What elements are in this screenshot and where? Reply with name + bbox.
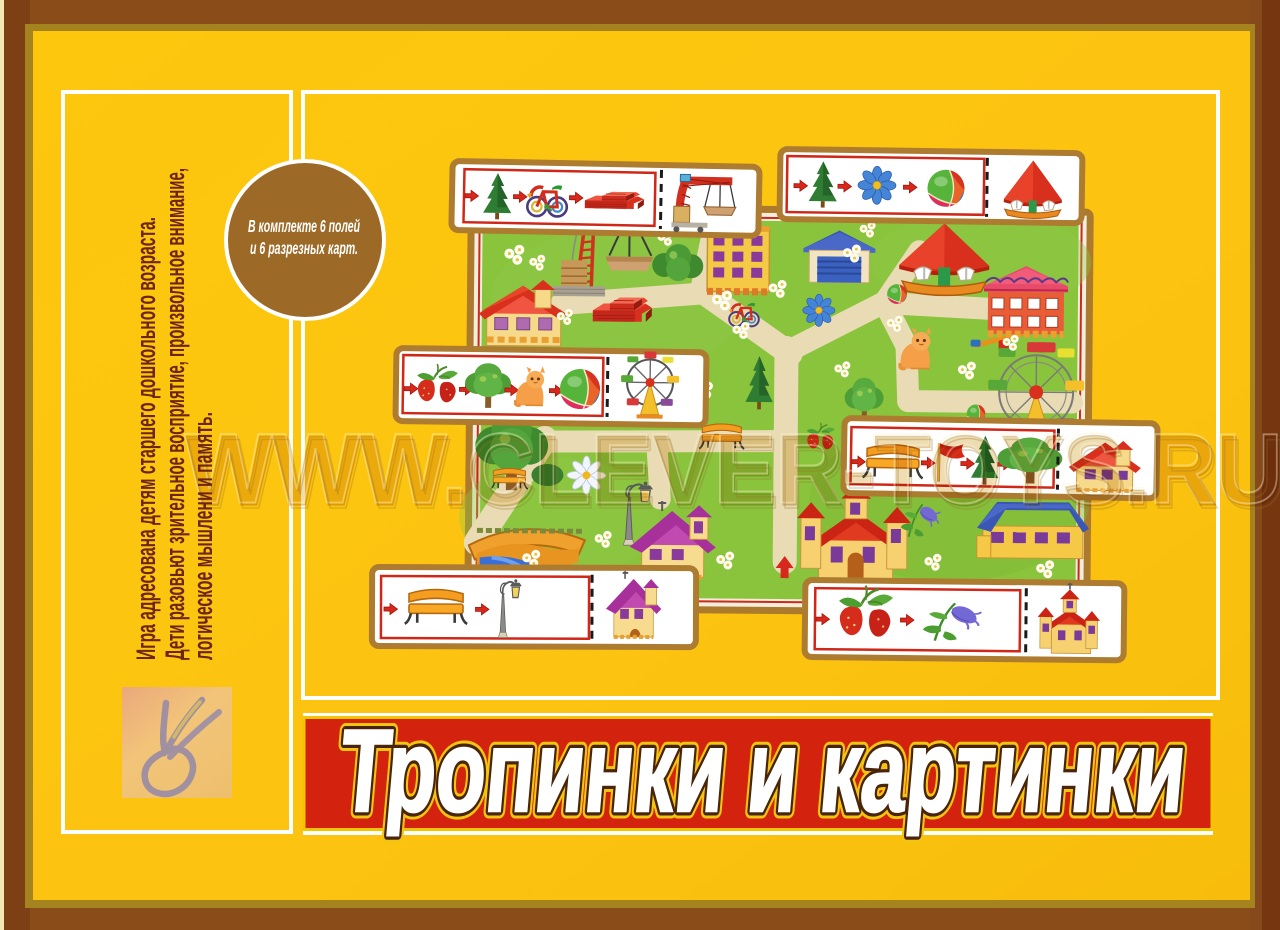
svg-text:и 6 разрезных карт.: и 6 разрезных карт. bbox=[250, 238, 358, 258]
svg-text:Игра адресована детям старшего: Игра адресована детям старшего дошкольно… bbox=[131, 217, 161, 660]
svg-text:WWW.CLEVER-TOYS.RU: WWW.CLEVER-TOYS.RU bbox=[188, 418, 1280, 529]
svg-text:Тропинки и картинки: Тропинки и картинки bbox=[335, 705, 1191, 836]
svg-text:Дети разовьют зрительное воспр: Дети разовьют зрительное восприятие, про… bbox=[160, 168, 190, 660]
svg-text:В комплекте 6 полей: В комплекте 6 полей bbox=[248, 216, 360, 236]
svg-text:логическое мышлени и память.: логическое мышлени и память. bbox=[188, 412, 218, 660]
